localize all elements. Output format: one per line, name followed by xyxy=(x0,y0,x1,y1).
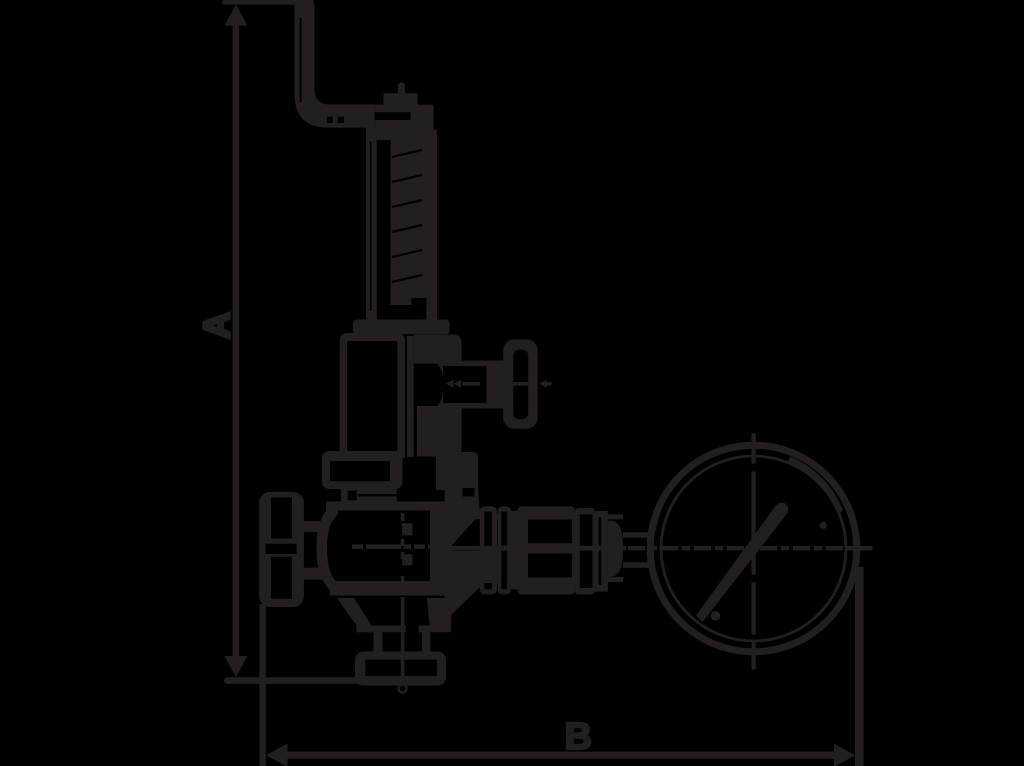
svg-text:B: B xyxy=(565,716,592,758)
svg-text:A: A xyxy=(196,313,237,339)
